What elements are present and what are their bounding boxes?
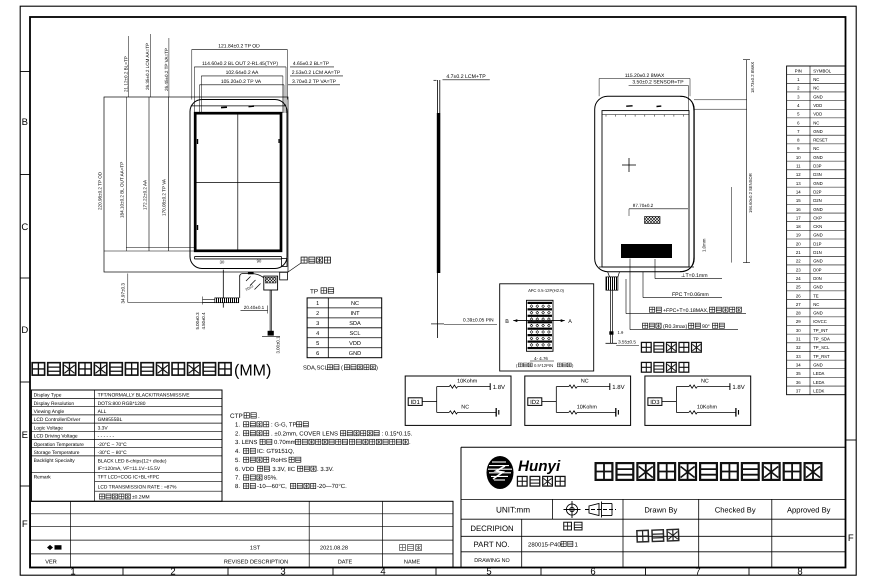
- svg-text:3: 3: [280, 567, 285, 578]
- svg-text:4.50±0.4: 4.50±0.4: [201, 312, 206, 330]
- svg-text:10Kohm: 10Kohm: [577, 405, 598, 411]
- svg-text:24: 24: [796, 276, 801, 281]
- svg-text:(: (: [341, 365, 343, 372]
- svg-text:NC: NC: [813, 146, 819, 151]
- svg-text:29: 29: [796, 319, 801, 324]
- svg-text:LCD TRANSMISSION RATE : ≈87%: LCD TRANSMISSION RATE : ≈87%: [98, 484, 178, 490]
- svg-text:±0.2MM: ±0.2MM: [132, 495, 150, 501]
- svg-text:SCL: SCL: [350, 331, 361, 337]
- svg-text:GND: GND: [813, 285, 823, 290]
- svg-text:NC: NC: [461, 405, 469, 411]
- svg-text:D3N: D3N: [813, 172, 822, 177]
- svg-text:5: 5: [486, 567, 491, 578]
- svg-text:CTP: CTP: [230, 413, 243, 420]
- svg-text:33: 33: [796, 354, 801, 359]
- svg-text:7.: 7.: [235, 475, 240, 482]
- svg-text:PART NO.: PART NO.: [474, 540, 510, 549]
- svg-text:GND: GND: [813, 181, 823, 186]
- svg-text:15: 15: [796, 198, 801, 203]
- svg-text:4.7±0.2 LCM+TP: 4.7±0.2 LCM+TP: [446, 74, 486, 80]
- svg-text:-20°C ~ 70°C: -20°C ~ 70°C: [98, 442, 128, 448]
- svg-text:184.10±0.2 BL OUT AA=TP: 184.10±0.2 BL OUT AA=TP: [120, 162, 125, 218]
- svg-text:87.70±0.2: 87.70±0.2: [633, 203, 654, 208]
- svg-text:3.50±0.2 SENSOR=TP: 3.50±0.2 SENSOR=TP: [632, 80, 684, 86]
- svg-text:7: 7: [695, 567, 700, 578]
- svg-text:LEDK: LEDK: [813, 388, 824, 393]
- svg-text:D1P: D1P: [813, 241, 821, 246]
- svg-text:: 0.15*0.15.: : 0.15*0.15.: [382, 430, 413, 437]
- svg-text:Logic Voltage: Logic Voltage: [34, 425, 64, 431]
- svg-text:D: D: [21, 325, 28, 336]
- svg-text:105.20±0.2 TP VA: 105.20±0.2 TP VA: [221, 79, 262, 85]
- svg-text:10Kohm: 10Kohm: [457, 378, 478, 384]
- svg-text:TFT LCD+COG IC+BL+FPC: TFT LCD+COG IC+BL+FPC: [98, 475, 160, 481]
- svg-text:TP_SCL: TP_SCL: [813, 345, 830, 350]
- svg-text:REVISED DESCRIPTION: REVISED DESCRIPTION: [224, 559, 288, 565]
- svg-text:LCD Controller/Driver: LCD Controller/Driver: [34, 417, 81, 423]
- svg-text:VDD: VDD: [813, 103, 822, 108]
- svg-text:Storage Temperature: Storage Temperature: [34, 450, 80, 456]
- svg-text:121.84±0.2 TP OD: 121.84±0.2 TP OD: [218, 44, 260, 50]
- svg-text:NAME: NAME: [404, 559, 420, 565]
- svg-text:TP_INT: TP_INT: [813, 328, 828, 333]
- svg-text:114.60±0.2 BL OUT 2-R1.45(TYP): 114.60±0.2 BL OUT 2-R1.45(TYP): [202, 61, 278, 67]
- svg-text:GND: GND: [813, 362, 823, 367]
- svg-text:NC: NC: [813, 302, 819, 307]
- svg-text:13: 13: [796, 181, 801, 186]
- svg-text:21.12±0.2 BL=TP: 21.12±0.2 BL=TP: [123, 56, 128, 92]
- svg-text:20: 20: [796, 241, 801, 246]
- svg-text:2.: 2.: [235, 430, 240, 437]
- svg-text:IC: GT9151Q,: IC: GT9151Q,: [257, 448, 295, 455]
- svg-text:35: 35: [796, 371, 801, 376]
- svg-text:194.60±0.2 SENSOR: 194.60±0.2 SENSOR: [748, 173, 753, 213]
- svg-text:22: 22: [796, 259, 801, 264]
- svg-text:11: 11: [796, 164, 801, 169]
- svg-text:Display Type: Display Type: [34, 392, 62, 398]
- svg-text:NC: NC: [581, 378, 589, 384]
- svg-text:26.45±0.2 TP VA=TP: 26.45±0.2 TP VA=TP: [164, 48, 169, 91]
- svg-text:GND: GND: [813, 233, 823, 238]
- svg-text:6: 6: [316, 351, 319, 357]
- svg-text:D2N: D2N: [813, 198, 822, 203]
- svg-text:- - - - - -: - - - - - -: [98, 435, 115, 440]
- svg-text:14: 14: [796, 189, 801, 194]
- svg-text:LCD Driving Voltage: LCD Driving Voltage: [34, 434, 78, 440]
- svg-text:RoHS: RoHS: [271, 457, 287, 464]
- svg-text:5: 5: [316, 341, 319, 347]
- svg-text:LEDA: LEDA: [813, 380, 824, 385]
- svg-text:Backlight Specialty: Backlight Specialty: [34, 458, 76, 464]
- svg-text:AFC 0.5-12P(H2.0): AFC 0.5-12P(H2.0): [528, 288, 564, 293]
- svg-text:5.00±0.3: 5.00±0.3: [195, 312, 200, 330]
- svg-text:3. LENS: 3. LENS: [235, 439, 257, 446]
- svg-text:TFT/NORMALLY BLACK/TRANSMISSIV: TFT/NORMALLY BLACK/TRANSMISSIVE: [98, 392, 191, 398]
- svg-text:2: 2: [316, 311, 319, 317]
- svg-text:D0N: D0N: [813, 276, 822, 281]
- svg-text:1.8V: 1.8V: [732, 384, 744, 391]
- svg-text:3.70±0.2 TP VA=TP: 3.70±0.2 TP VA=TP: [292, 79, 337, 85]
- svg-text:1.0mm: 1.0mm: [702, 238, 707, 252]
- svg-text:1ST: 1ST: [250, 546, 261, 552]
- svg-text:10Kohm: 10Kohm: [697, 405, 718, 411]
- svg-text:NC: NC: [351, 301, 359, 307]
- svg-text:21: 21: [796, 250, 801, 255]
- svg-text:SYMBOL: SYMBOL: [813, 68, 832, 73]
- svg-text:170.08±0.2 TP VA: 170.08±0.2 TP VA: [162, 178, 167, 216]
- svg-text:37: 37: [796, 388, 801, 393]
- svg-text:18: 18: [796, 224, 801, 229]
- svg-text:ID3: ID3: [650, 399, 660, 406]
- svg-text:32: 32: [796, 345, 801, 350]
- svg-text:D2P: D2P: [813, 189, 821, 194]
- svg-text:TE: TE: [813, 293, 819, 298]
- svg-text:D0P: D0P: [813, 267, 821, 272]
- svg-text:GND: GND: [813, 94, 823, 99]
- svg-text:ALL: ALL: [98, 409, 107, 415]
- svg-text:12: 12: [796, 172, 801, 177]
- svg-text:NC: NC: [701, 378, 709, 384]
- svg-text:172.22±0.2 AA: 172.22±0.2 AA: [143, 179, 148, 210]
- svg-text:2: 2: [170, 567, 175, 578]
- svg-text:0.5*12PIN: 0.5*12PIN: [534, 363, 553, 368]
- svg-text:26.35±0.2 LCM AA=TP: 26.35±0.2 LCM AA=TP: [145, 43, 150, 90]
- svg-text:34.97±0.3: 34.97±0.3: [121, 283, 126, 304]
- svg-text:280015-P40-: 280015-P40-: [528, 541, 563, 548]
- svg-text:VER: VER: [45, 559, 57, 565]
- svg-text:D3P: D3P: [813, 164, 821, 169]
- svg-text:Display Resolution: Display Resolution: [34, 401, 75, 407]
- svg-text:-20—70°C.: -20—70°C.: [317, 483, 347, 490]
- svg-text:102.64±0.2 AA: 102.64±0.2 AA: [226, 70, 259, 76]
- svg-text:GM8555BL: GM8555BL: [98, 417, 123, 423]
- svg-text:BLACK LED 8-chips(12+ diode): BLACK LED 8-chips(12+ diode): [98, 458, 167, 464]
- svg-text:6. VDD: 6. VDD: [235, 466, 255, 473]
- svg-text:UNIT:mm: UNIT:mm: [496, 505, 530, 514]
- svg-text:115.20±0.2 8MAX: 115.20±0.2 8MAX: [625, 73, 665, 79]
- svg-text:2.53±0.2 LCM AA=TP: 2.53±0.2 LCM AA=TP: [292, 70, 341, 76]
- svg-text:Approved By: Approved By: [787, 505, 831, 514]
- svg-text:3.3V: 3.3V: [98, 425, 109, 431]
- svg-text:34: 34: [796, 362, 801, 367]
- svg-text:1.8V: 1.8V: [493, 384, 505, 391]
- svg-text:25: 25: [796, 285, 801, 290]
- svg-text:SDA: SDA: [349, 321, 361, 327]
- svg-text:DATE: DATE: [338, 559, 353, 565]
- svg-text:C: C: [21, 222, 28, 233]
- svg-text:Hunyi: Hunyi: [518, 458, 561, 475]
- svg-text:36: 36: [796, 380, 801, 385]
- svg-text:10: 10: [796, 155, 801, 160]
- svg-text:GND: GND: [813, 207, 823, 212]
- svg-text:DRAWING NO: DRAWING NO: [474, 558, 509, 564]
- svg-text:NC: NC: [813, 86, 819, 91]
- svg-text:Drawn By: Drawn By: [644, 505, 677, 514]
- svg-text:): ): [376, 365, 378, 372]
- svg-text:TP_RST: TP_RST: [813, 354, 830, 359]
- svg-text:90°: 90°: [702, 324, 710, 330]
- svg-text:CKP: CKP: [813, 215, 822, 220]
- svg-text:IF=120mA, VF=11.1V~15.5V: IF=120mA, VF=11.1V~15.5V: [98, 466, 161, 472]
- svg-text:18.73±0.2 8MAX: 18.73±0.2 8MAX: [750, 62, 755, 93]
- svg-text:85%.: 85%.: [264, 475, 278, 482]
- svg-text:Operation Temperature: Operation Temperature: [34, 442, 84, 448]
- svg-text:30: 30: [220, 260, 225, 265]
- svg-text:B: B: [505, 319, 509, 325]
- svg-text:. ±0.2mm, COVER LENS: . ±0.2mm, COVER LENS: [271, 430, 338, 437]
- svg-text:0.70mm: 0.70mm: [274, 439, 296, 446]
- svg-text:3.55±0.5: 3.55±0.5: [618, 340, 636, 345]
- svg-text:NC: NC: [813, 77, 819, 82]
- svg-text:A: A: [568, 319, 572, 325]
- svg-text:GND: GND: [813, 259, 823, 264]
- svg-text:1: 1: [316, 301, 319, 307]
- svg-text:Remark: Remark: [34, 475, 52, 481]
- svg-text:⊥T=0.1mm: ⊥T=0.1mm: [681, 273, 708, 279]
- svg-text:-30°C ~ 80°C: -30°C ~ 80°C: [98, 450, 128, 456]
- svg-text:VDD: VDD: [349, 341, 361, 347]
- svg-text:19: 19: [796, 233, 801, 238]
- svg-text:2021.08.28: 2021.08.28: [320, 546, 348, 552]
- svg-text:4.65±0.2 BL=TP: 4.65±0.2 BL=TP: [293, 61, 330, 67]
- svg-text:8: 8: [797, 567, 802, 578]
- svg-text:-10—60°C,: -10—60°C,: [257, 483, 287, 490]
- svg-text:GND: GND: [813, 155, 823, 160]
- svg-text:. 3.3V, IIC: . 3.3V, IIC: [269, 466, 296, 473]
- svg-text:RESET: RESET: [813, 138, 828, 143]
- svg-text:Checked By: Checked By: [715, 505, 756, 514]
- svg-text:220.98±0.2 TP OD: 220.98±0.2 TP OD: [98, 171, 103, 210]
- svg-text:4: 4: [316, 331, 319, 337]
- svg-text:(R0.3max): (R0.3max): [663, 324, 687, 330]
- svg-text:(MM): (MM): [234, 363, 271, 380]
- svg-text:LEDA: LEDA: [813, 371, 824, 376]
- svg-text:. 3.3V.: . 3.3V.: [317, 466, 334, 473]
- svg-text:30: 30: [796, 328, 801, 333]
- svg-text:F: F: [848, 533, 854, 544]
- svg-text:GND: GND: [813, 129, 823, 134]
- svg-text:16: 16: [796, 207, 801, 212]
- svg-text:E: E: [22, 430, 28, 441]
- svg-text:NC: NC: [813, 120, 819, 125]
- svg-text:0.39±0.05 PIN: 0.39±0.05 PIN: [463, 318, 494, 324]
- svg-text:8.: 8.: [235, 483, 240, 490]
- svg-text:1.9: 1.9: [618, 330, 624, 335]
- svg-text:TP_SDA: TP_SDA: [813, 337, 830, 342]
- svg-text:31: 31: [796, 337, 801, 342]
- svg-text:PIN: PIN: [795, 68, 802, 73]
- svg-text:TP: TP: [310, 288, 318, 295]
- svg-text:D1N: D1N: [813, 250, 822, 255]
- svg-text:23: 23: [796, 267, 801, 272]
- svg-text:4- 4.76: 4- 4.76: [534, 356, 548, 361]
- svg-text:Viewing Angle: Viewing Angle: [34, 409, 65, 415]
- svg-text:B: B: [22, 117, 28, 128]
- svg-text:+FPC+T=0.18MAX,: +FPC+T=0.18MAX,: [663, 308, 708, 314]
- svg-text:DOTS:800 RGB*1280: DOTS:800 RGB*1280: [98, 401, 146, 407]
- svg-text:.: .: [258, 413, 260, 420]
- svg-text:VDD: VDD: [813, 112, 822, 117]
- svg-text:: G-G, TP: : G-G, TP: [271, 421, 297, 428]
- svg-text:1.8V: 1.8V: [612, 384, 624, 391]
- svg-text:INT: INT: [350, 311, 360, 317]
- svg-text:SDA,SCL: SDA,SCL: [303, 365, 329, 372]
- svg-text:1: 1: [70, 567, 75, 578]
- svg-text:6: 6: [590, 567, 595, 578]
- svg-text:3.00±0.1: 3.00±0.1: [276, 336, 281, 354]
- svg-text:ID1: ID1: [411, 399, 421, 406]
- svg-text:GND: GND: [349, 351, 361, 357]
- svg-text:90: 90: [257, 259, 262, 264]
- svg-text:F: F: [22, 519, 28, 530]
- svg-text:27: 27: [796, 302, 801, 307]
- svg-text:20.40±0.1: 20.40±0.1: [244, 305, 265, 310]
- svg-text:5.: 5.: [235, 457, 240, 464]
- svg-text:4: 4: [380, 567, 385, 578]
- svg-text:CKN: CKN: [813, 224, 822, 229]
- svg-text:4.: 4.: [235, 448, 240, 455]
- svg-text:1.: 1.: [235, 421, 240, 428]
- svg-text:28: 28: [796, 311, 801, 316]
- svg-text:ID2: ID2: [530, 399, 540, 406]
- svg-text:3: 3: [316, 321, 319, 327]
- svg-text:IOVCC: IOVCC: [813, 319, 827, 324]
- svg-text:DECRIPION: DECRIPION: [470, 524, 513, 533]
- svg-text:GND: GND: [813, 311, 823, 316]
- svg-text:26: 26: [796, 293, 801, 298]
- svg-text:FPC T=0.06mm: FPC T=0.06mm: [672, 292, 709, 298]
- svg-text:17: 17: [796, 215, 801, 220]
